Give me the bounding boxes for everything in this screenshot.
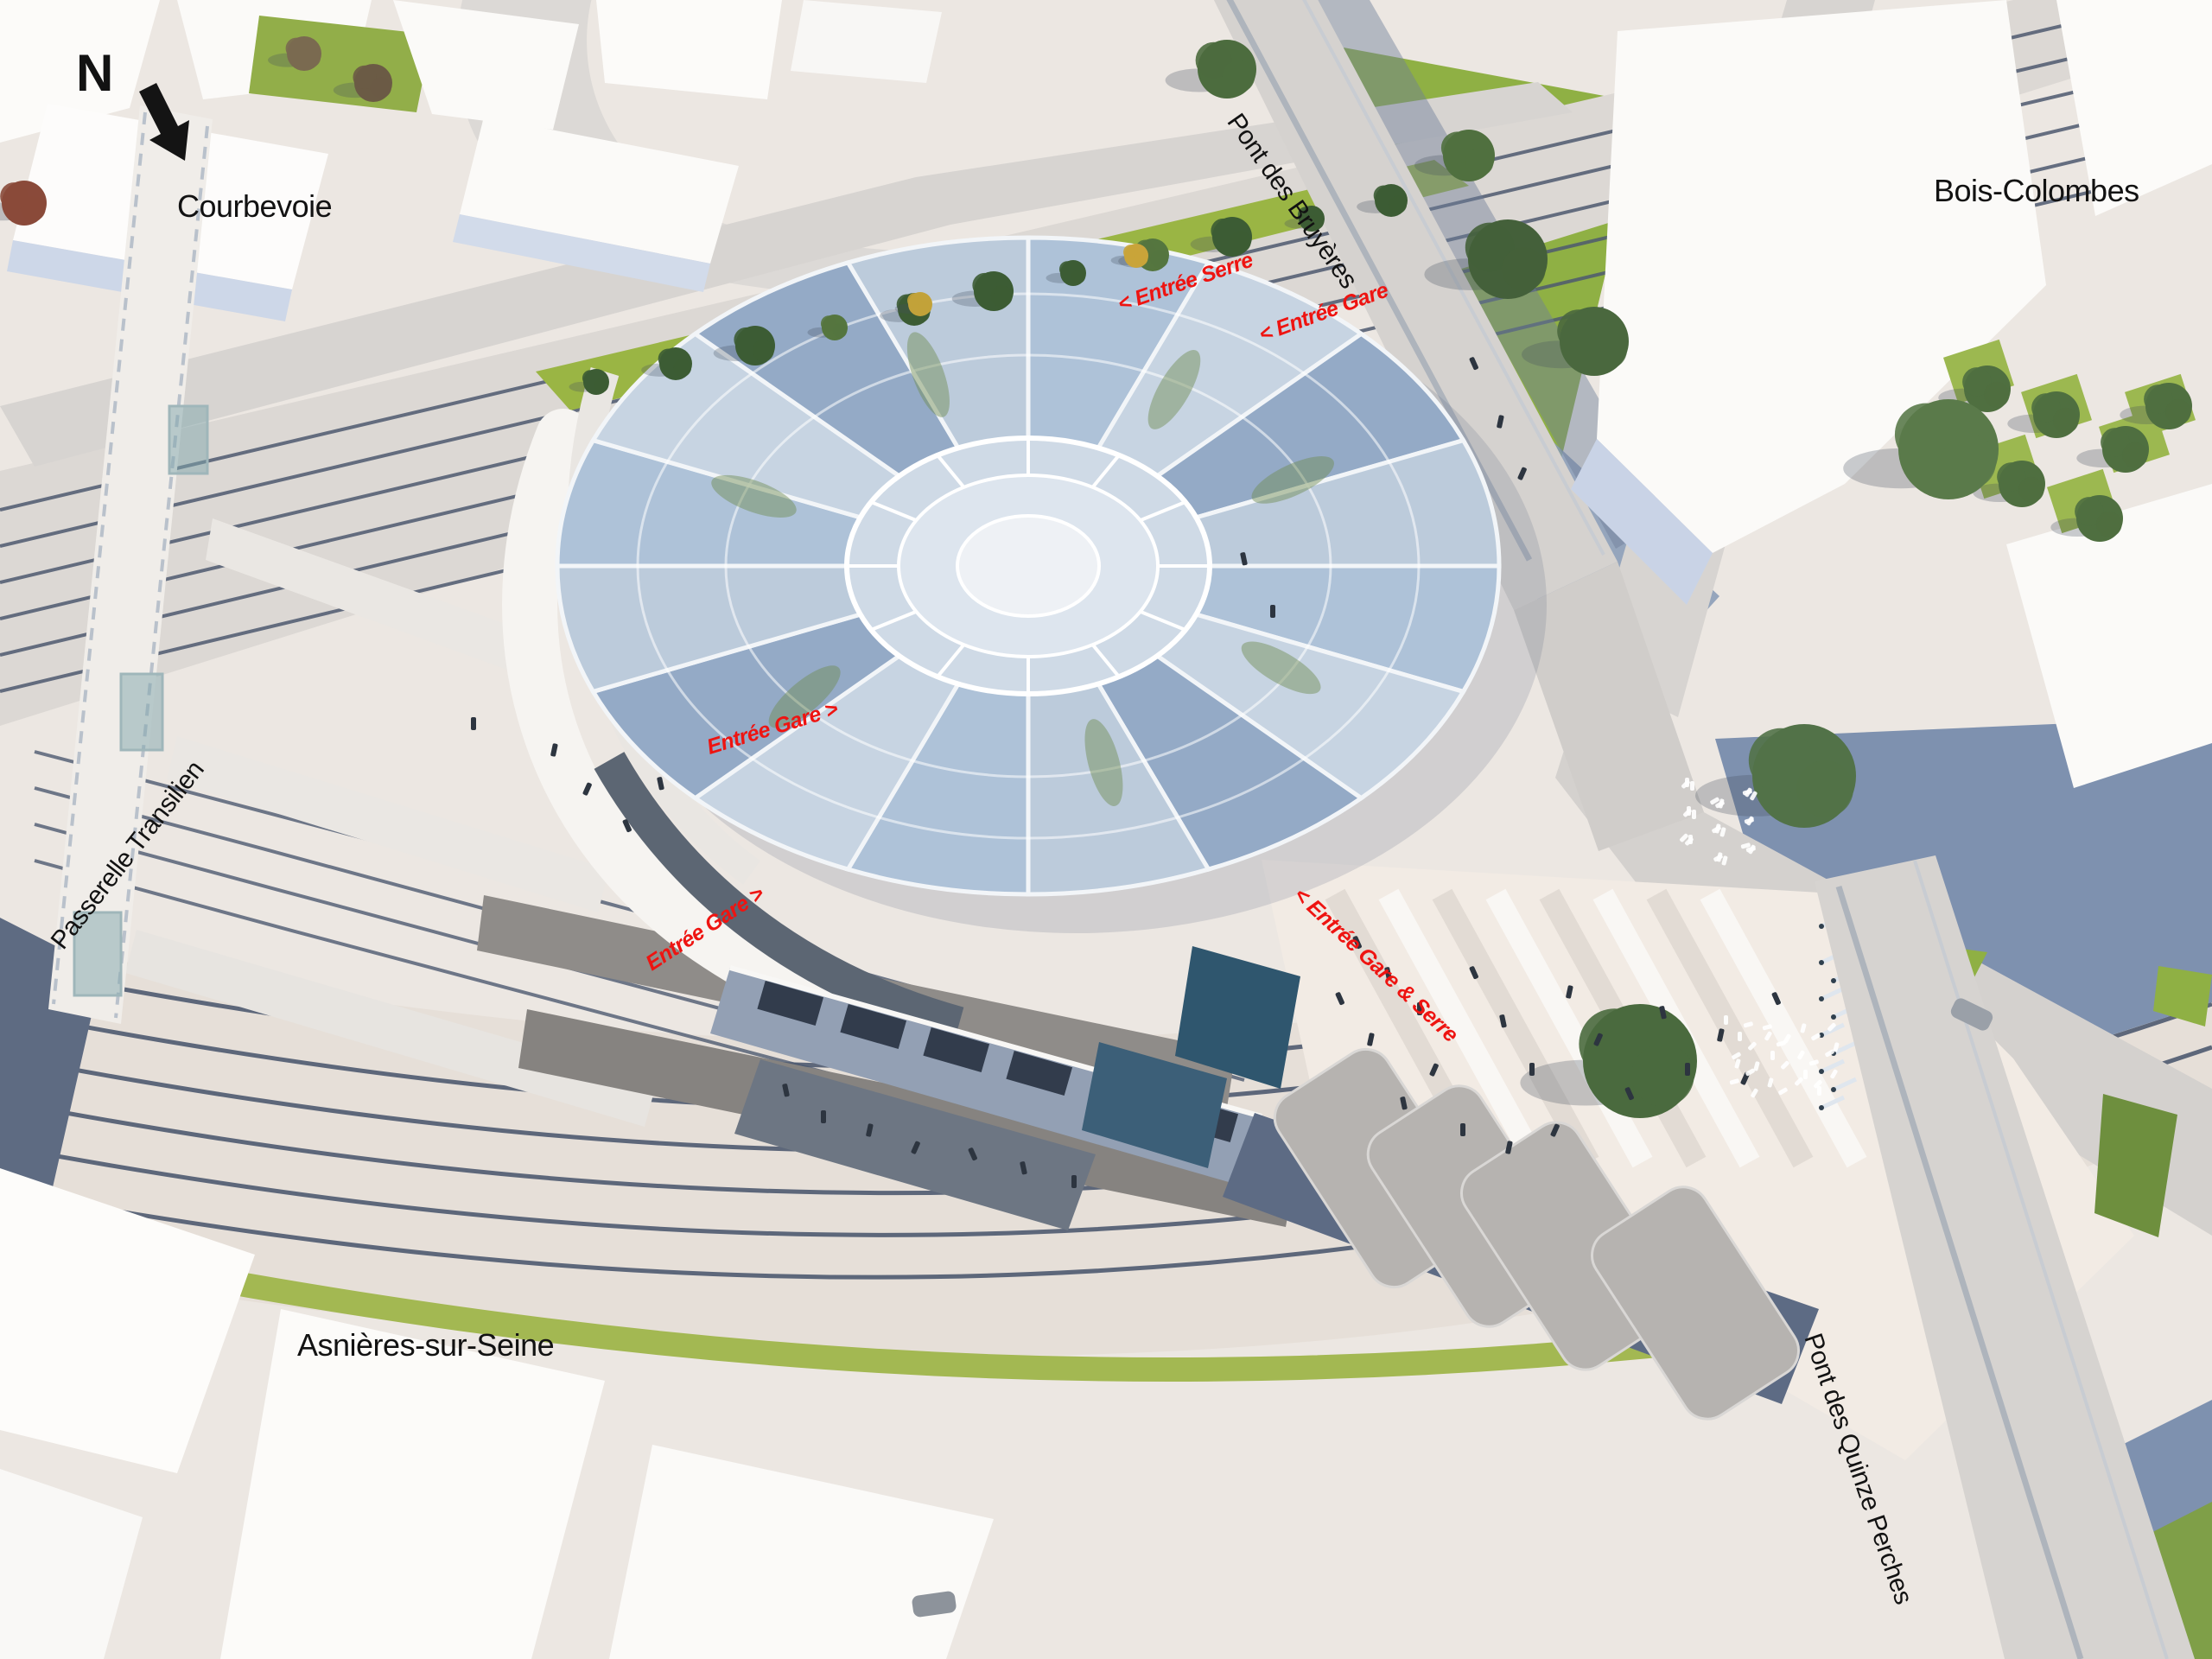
scene-graphics [0, 0, 2212, 1659]
tree [1984, 382, 2010, 408]
tree [1941, 435, 1996, 490]
tree [1465, 148, 1494, 176]
pedestrian [1529, 1063, 1535, 1076]
pedestrian [1460, 1123, 1465, 1136]
crosswalk-mark [1724, 1015, 1728, 1025]
tree [371, 77, 391, 98]
compass-north-label: N [76, 43, 113, 103]
tree [673, 359, 691, 377]
tree [1150, 250, 1168, 268]
tree [2096, 512, 2122, 537]
tree [753, 340, 774, 361]
tree [2122, 442, 2148, 468]
bike-rack-post [1819, 960, 1824, 965]
tree [1389, 195, 1407, 213]
tree [21, 196, 46, 221]
tree [302, 48, 321, 67]
bike-rack-post [1831, 1014, 1836, 1020]
dome-cap [957, 516, 1099, 616]
district-label-bois-colombes: Bois-Colombes [1934, 173, 2139, 209]
district-label-courbevoie: Courbevoie [177, 188, 332, 225]
crosswalk-mark [1690, 781, 1694, 791]
tree [1796, 760, 1853, 817]
glass-lift-shaft [121, 674, 162, 750]
crosswalk-mark [1803, 1070, 1808, 1079]
tree [594, 378, 609, 393]
bike-rack-post [1831, 1087, 1836, 1092]
glass-lift-shaft [169, 406, 207, 474]
tree [2018, 477, 2044, 503]
pedestrian [821, 1110, 826, 1123]
building-block [596, 0, 782, 99]
pedestrian [1685, 1063, 1690, 1076]
bike-rack-post [1831, 978, 1836, 983]
district-label-asnieres: Asnières-sur-Seine [297, 1327, 554, 1363]
aerial-site-rendering: N Courbevoie Bois-Colombes Asnières-sur-… [0, 0, 2212, 1659]
bike-rack-post [1819, 924, 1824, 929]
pedestrian [471, 717, 476, 730]
crosswalk-mark [1770, 1051, 1775, 1060]
building-block [791, 0, 942, 83]
tree [991, 285, 1013, 307]
tree [2165, 399, 2191, 425]
crosswalk-mark [1738, 1032, 1742, 1041]
crosswalk-mark [1692, 810, 1696, 819]
tree [1589, 331, 1627, 369]
tree [833, 324, 848, 339]
bike-rack-post [1819, 1069, 1824, 1074]
bike-rack-post [1819, 1105, 1824, 1110]
tree [1631, 1044, 1694, 1107]
tree [1223, 60, 1255, 92]
tree [918, 301, 931, 314]
pedestrian [1071, 1175, 1077, 1188]
bike-rack-post [1819, 996, 1824, 1001]
tree [2053, 408, 2079, 434]
pedestrian [1270, 605, 1275, 618]
tree [1135, 252, 1147, 265]
tree [1071, 270, 1086, 284]
crosswalk-mark [1817, 1086, 1821, 1096]
tree [1502, 247, 1546, 291]
